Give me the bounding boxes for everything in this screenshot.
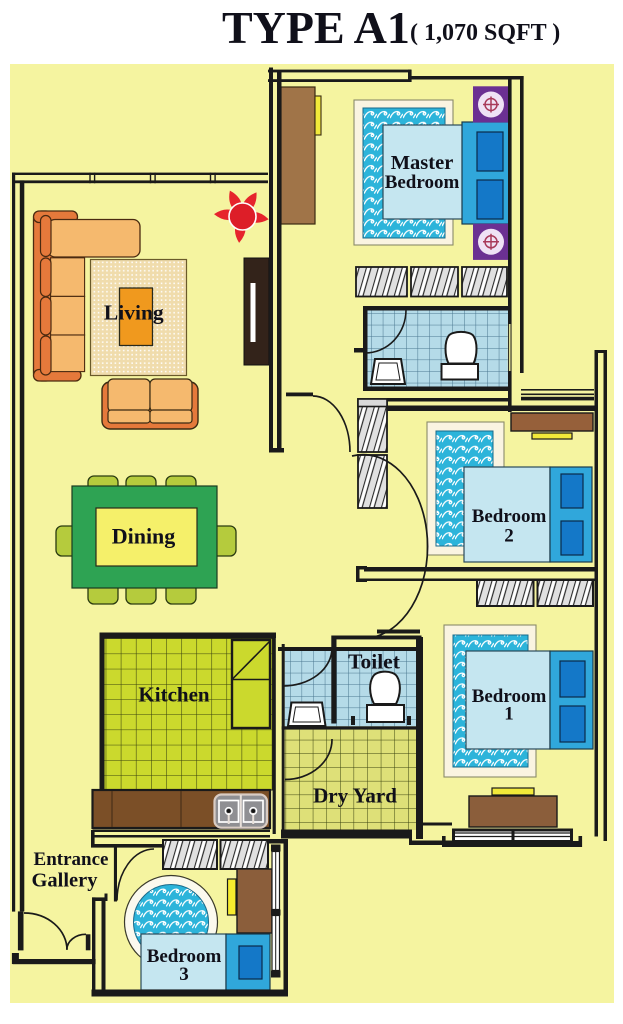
- svg-text:Gallery: Gallery: [31, 870, 98, 892]
- svg-text:Bedroom: Bedroom: [385, 172, 460, 193]
- svg-text:Living: Living: [104, 301, 164, 325]
- svg-text:Toilet: Toilet: [348, 650, 401, 674]
- svg-text:TYPE A1: TYPE A1: [222, 2, 410, 53]
- svg-text:Dry Yard: Dry Yard: [313, 784, 397, 808]
- svg-text:2: 2: [504, 526, 514, 547]
- svg-text:1: 1: [504, 704, 514, 725]
- svg-text:Master: Master: [391, 152, 454, 174]
- svg-text:Kitchen: Kitchen: [138, 683, 209, 707]
- svg-text:Dining: Dining: [112, 524, 176, 549]
- svg-text:( 1,070 SQFT ): ( 1,070 SQFT ): [410, 20, 560, 46]
- svg-text:3: 3: [179, 964, 189, 985]
- svg-text:Bedroom: Bedroom: [472, 506, 547, 527]
- svg-text:Entrance: Entrance: [34, 849, 109, 870]
